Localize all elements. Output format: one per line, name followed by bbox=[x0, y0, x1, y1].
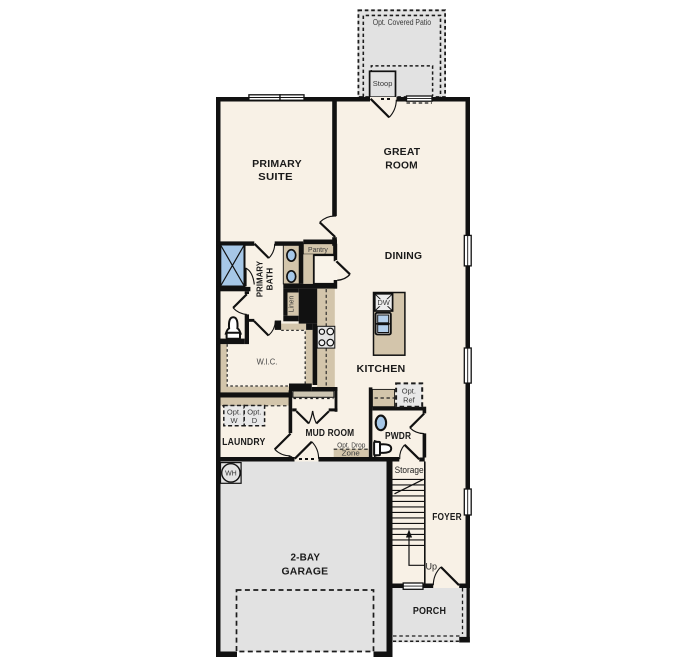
svg-text:ROOM: ROOM bbox=[385, 160, 418, 172]
svg-text:LAUNDRY: LAUNDRY bbox=[222, 436, 265, 448]
svg-text:PRIMARY: PRIMARY bbox=[254, 261, 264, 297]
svg-text:D: D bbox=[252, 416, 258, 425]
svg-text:MUD ROOM: MUD ROOM bbox=[306, 427, 355, 439]
svg-text:Opt. Covered Patio: Opt. Covered Patio bbox=[373, 18, 432, 27]
svg-text:Storage: Storage bbox=[395, 465, 424, 475]
svg-text:Up: Up bbox=[426, 561, 438, 571]
svg-text:DINING: DINING bbox=[385, 250, 422, 262]
svg-text:Ref: Ref bbox=[403, 395, 416, 404]
svg-text:PWDR: PWDR bbox=[385, 430, 411, 442]
svg-text:FOYER: FOYER bbox=[432, 511, 462, 523]
svg-text:WH: WH bbox=[225, 471, 237, 478]
svg-text:Zone: Zone bbox=[342, 448, 360, 457]
svg-text:DW: DW bbox=[377, 298, 390, 307]
svg-text:KITCHEN: KITCHEN bbox=[357, 363, 406, 375]
svg-text:GARAGE: GARAGE bbox=[281, 566, 328, 578]
svg-text:2-BAY: 2-BAY bbox=[290, 552, 320, 564]
svg-text:PRIMARY: PRIMARY bbox=[252, 158, 302, 170]
svg-text:PORCH: PORCH bbox=[413, 605, 446, 617]
svg-text:SUITE: SUITE bbox=[258, 171, 293, 183]
svg-text:Pantry: Pantry bbox=[308, 245, 328, 254]
svg-text:Linen: Linen bbox=[287, 296, 296, 313]
svg-text:Stoop: Stoop bbox=[373, 79, 393, 88]
svg-text:GREAT: GREAT bbox=[384, 146, 421, 158]
svg-text:W.I.C.: W.I.C. bbox=[257, 358, 278, 367]
svg-text:BATH: BATH bbox=[265, 268, 275, 291]
svg-text:Opt.: Opt. bbox=[402, 386, 416, 395]
svg-text:W: W bbox=[230, 416, 238, 425]
